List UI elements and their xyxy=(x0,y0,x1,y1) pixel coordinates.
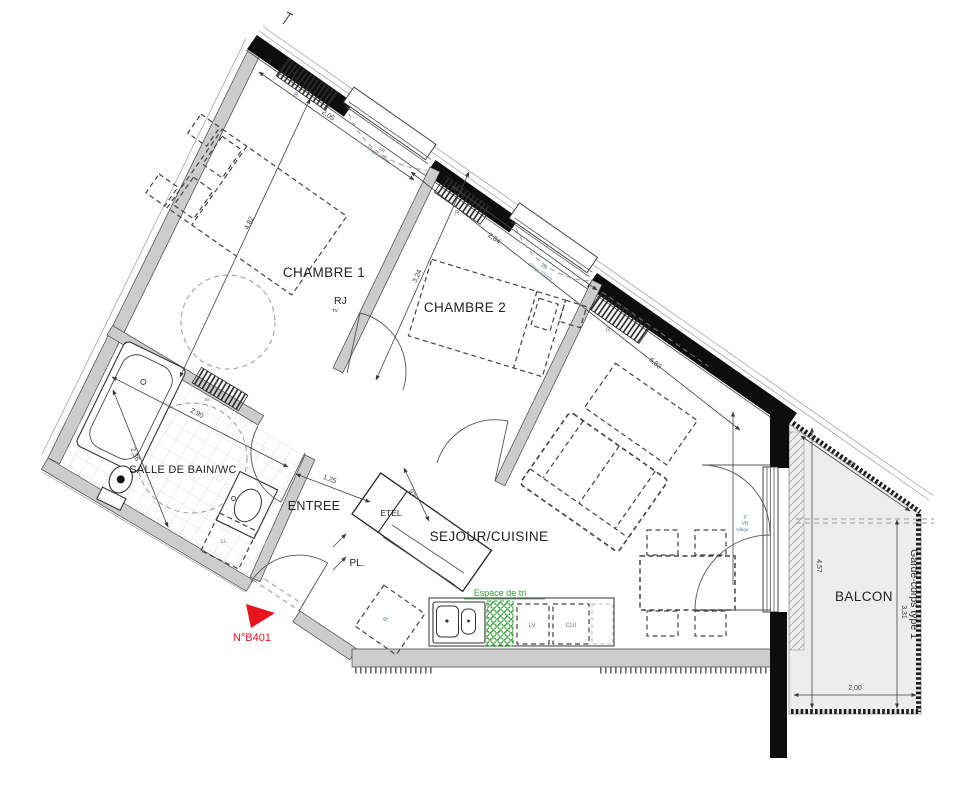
fridge-label: R xyxy=(383,616,391,624)
unit-number: N°B401 xyxy=(233,632,271,644)
entrance-arrow xyxy=(246,604,275,628)
dim-balcony-len2: 3,31 xyxy=(900,605,907,619)
floor-plan-svg: LL ss R R R xyxy=(0,0,974,800)
label-chambre1: CHAMBRE 1 xyxy=(283,265,365,280)
washing-machine-label: LL xyxy=(221,539,227,545)
entry-threshold xyxy=(253,580,300,611)
balcony-floor xyxy=(789,424,921,714)
bottom-wall xyxy=(352,649,771,667)
floor-plan-page: LL ss R R R xyxy=(0,0,974,800)
chambre1-door-swing xyxy=(360,313,406,390)
label-garde-corps: Garde-corps type 1 xyxy=(908,549,920,639)
label-balcon: BALCON xyxy=(835,589,893,604)
dim-balcony-len1: 4,57 xyxy=(815,559,822,573)
right-wall-pier xyxy=(770,415,789,468)
right-wall-pier xyxy=(770,612,787,758)
label-entree: ENTREE xyxy=(288,499,341,513)
balcony-door-upper-swing xyxy=(702,465,770,533)
fridge xyxy=(355,585,425,655)
radiator-label: R xyxy=(455,211,460,217)
label-bathroom: SALLE DE BAIN/WC xyxy=(129,464,237,476)
door-allege: Allège xyxy=(736,527,749,532)
window-2-glazing xyxy=(515,218,593,272)
label-placard: PL. xyxy=(349,558,364,569)
dining-set xyxy=(640,530,735,636)
radiator-label: R xyxy=(606,328,611,334)
entry-wall xyxy=(293,611,357,660)
entrance-door-leaf xyxy=(299,563,328,611)
waste-sorting-label: Espace de tri xyxy=(474,588,527,598)
waste-sorting-area xyxy=(487,601,513,646)
kitchen: LV CUI Espace de tri xyxy=(429,588,614,646)
chambre2-door-swing xyxy=(437,420,508,463)
towel-radiator-label: ss xyxy=(205,397,211,403)
entry-threshold xyxy=(257,574,304,605)
label-chambre2: CHAMBRE 2 xyxy=(424,300,506,315)
dim-entree-width: 1,25 xyxy=(322,474,337,485)
turning-circle-chambre1 xyxy=(181,275,275,369)
dim-sejour-length: 6,83 xyxy=(647,357,662,371)
coffee-table xyxy=(585,363,698,465)
closet-arrow xyxy=(333,534,346,547)
balcony-door-note: F VR Allège xyxy=(736,515,749,532)
dim-chambre1-length: 4,82 xyxy=(244,216,256,231)
dishwasher-label: LV xyxy=(529,623,536,629)
entrance-marker: N°B401 xyxy=(233,604,275,644)
facade-wall-segment xyxy=(592,280,792,420)
cooker-label: CUI xyxy=(566,623,577,629)
label-tv: TV xyxy=(332,308,339,313)
closet-arrow xyxy=(333,557,346,570)
balcony-hatch-strip xyxy=(789,432,804,650)
dim-chambre2-length: 3,24 xyxy=(412,269,424,284)
dim-chambre2-width: 2,84 xyxy=(486,232,501,246)
label-sejour: SEJOUR/CUISINE xyxy=(430,529,549,544)
label-etel: ETEL xyxy=(380,508,402,518)
balcony-door-lower-swing xyxy=(695,535,770,610)
window-1 xyxy=(344,87,437,160)
kitchen-sink xyxy=(433,602,485,643)
survey-pin-icon xyxy=(283,12,293,24)
window-2 xyxy=(509,203,598,273)
dim-balcony-width: 2,00 xyxy=(848,685,862,692)
radiator-chambre1 xyxy=(276,58,338,110)
label-rj: RJ xyxy=(334,295,347,307)
